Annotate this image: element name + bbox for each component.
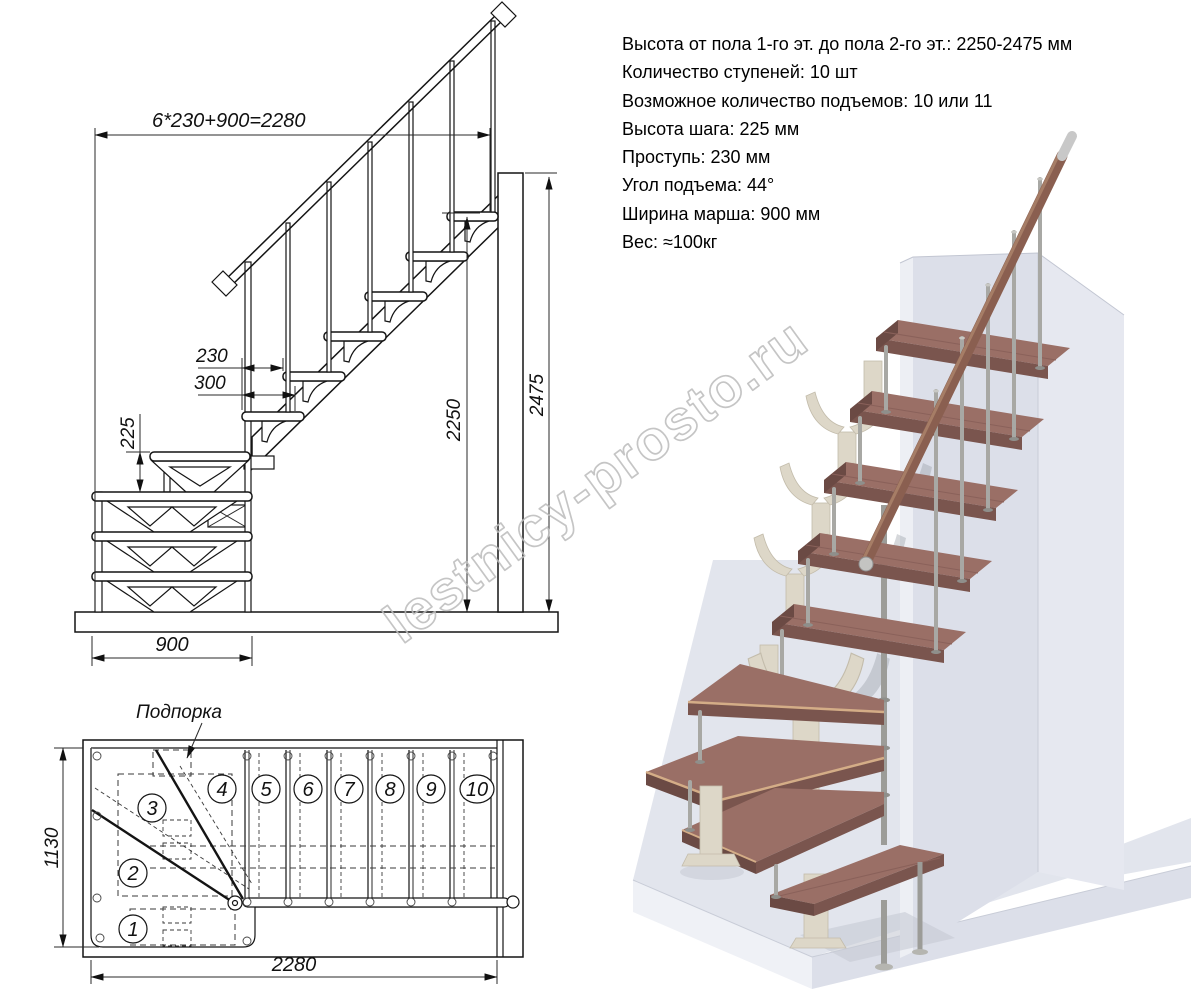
page: 6*230+900=2280 230 300 225 2250 2475 90 <box>0 0 1191 993</box>
step-number: 3 <box>146 798 157 820</box>
spec-line-weight: Вес: ≈100кг <box>622 228 1162 256</box>
step-number: 8 <box>384 779 395 801</box>
step-number: 5 <box>260 779 272 801</box>
step-number: 9 <box>425 779 436 801</box>
spec-line-rise-count: Возможное количество подъемов: 10 или 11 <box>622 87 1162 115</box>
dim-clear-height: 2250 <box>444 398 465 442</box>
dim-riser: 225 <box>118 417 139 450</box>
spec-line-march-width: Ширина марша: 900 мм <box>622 200 1162 228</box>
dim-depth: 1130 <box>42 827 63 868</box>
render-3d <box>633 136 1191 989</box>
step-number: 1 <box>127 919 138 941</box>
handrail-end-cap-3d <box>859 557 873 571</box>
spec-line-step-height: Высота шага: 225 мм <box>622 115 1162 143</box>
dim-run: 230 <box>195 346 228 367</box>
step-number: 6 <box>302 779 314 801</box>
spec-line-height-range: Высота от пола 1-го эт. до пола 2-го эт.… <box>622 30 1162 58</box>
dim-total-run: 6*230+900=2280 <box>152 110 306 132</box>
step-number: 7 <box>343 779 355 801</box>
step-number: 10 <box>466 779 488 801</box>
step-number: 2 <box>126 863 138 885</box>
spec-line-tread: Проступь: 230 мм <box>622 143 1162 171</box>
dim-tread-depth: 300 <box>194 373 226 394</box>
floor-base <box>75 612 558 632</box>
plan-drawing: 1 2 3 4 5 6 7 8 9 10 Подпорка 1130 2280 <box>42 702 523 984</box>
spec-line-angle: Угол подъема: 44° <box>622 171 1162 199</box>
dim-total-height: 2475 <box>527 373 548 417</box>
step-number: 4 <box>216 779 227 801</box>
dim-length: 2280 <box>271 954 317 976</box>
spec-line-step-count: Количество ступеней: 10 шт <box>622 58 1162 86</box>
handrail-end-cap <box>212 271 237 296</box>
support-label: Подпорка <box>136 702 222 723</box>
spec-block: Высота от пола 1-го эт. до пола 2-го эт.… <box>622 30 1162 256</box>
dim-march-width: 900 <box>155 634 188 656</box>
